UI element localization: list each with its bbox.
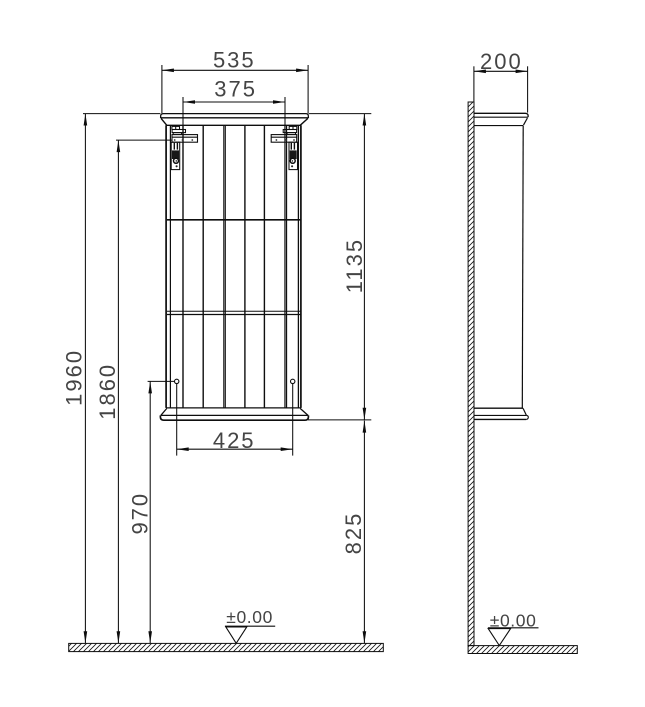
svg-text:825: 825: [341, 512, 366, 555]
svg-text:1960: 1960: [62, 349, 87, 406]
svg-text:±0.00: ±0.00: [226, 607, 273, 627]
svg-text:±0.00: ±0.00: [490, 610, 537, 630]
svg-text:535: 535: [213, 47, 256, 72]
svg-text:1860: 1860: [95, 363, 120, 420]
svg-text:970: 970: [128, 492, 153, 535]
svg-text:1135: 1135: [342, 238, 367, 293]
svg-text:200: 200: [480, 49, 523, 74]
svg-text:375: 375: [214, 77, 257, 102]
svg-text:425: 425: [213, 428, 256, 453]
